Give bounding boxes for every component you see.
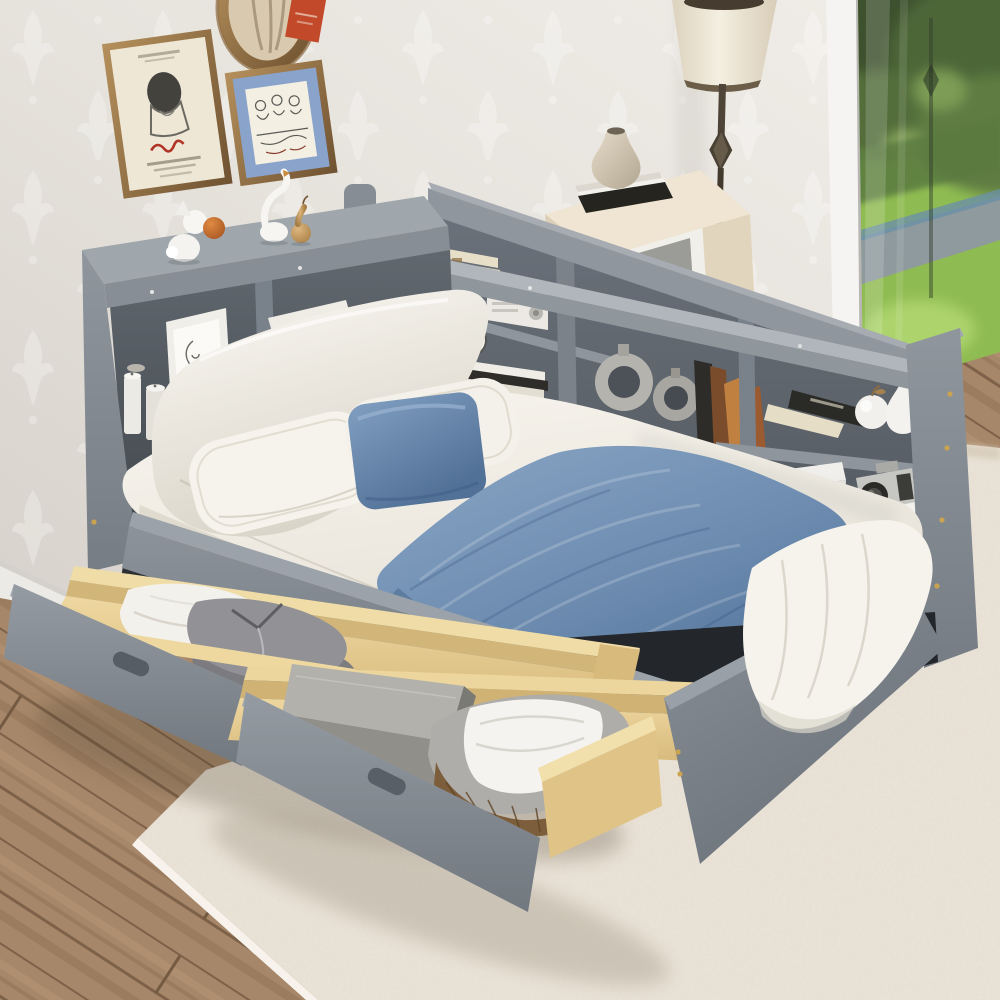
bedroom-product-photo [0,0,1000,1000]
scene [0,0,1000,1000]
